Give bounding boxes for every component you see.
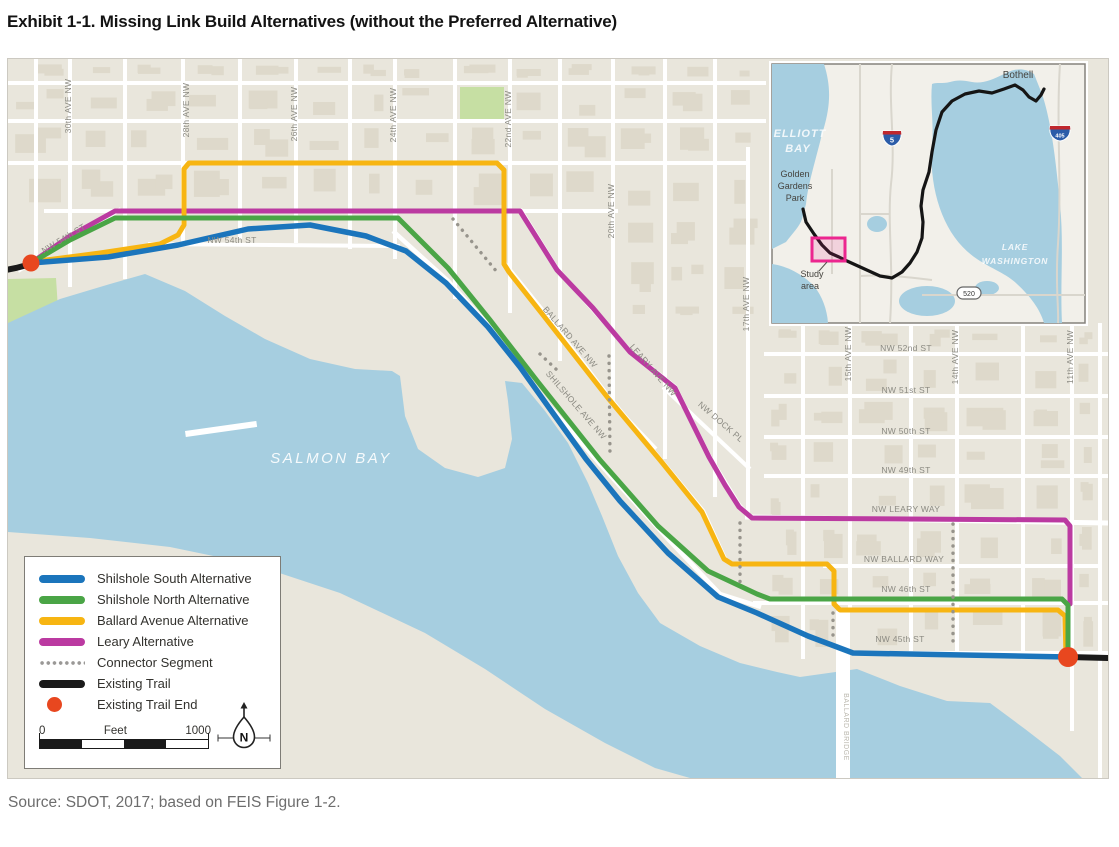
- building: [86, 131, 106, 147]
- building: [972, 334, 997, 340]
- street-label: NW 51st ST: [882, 385, 931, 395]
- street-label: 22nd AVE NW: [503, 90, 513, 147]
- building: [688, 139, 709, 151]
- building: [1040, 335, 1057, 342]
- building: [814, 413, 829, 421]
- street-label: NW 46th ST: [881, 584, 930, 594]
- building: [1082, 527, 1092, 550]
- legend-swatch-line: [39, 575, 85, 583]
- street-label: 14th AVE NW: [950, 330, 960, 385]
- building: [671, 267, 682, 281]
- study-area-box: [812, 238, 845, 261]
- building: [734, 219, 758, 229]
- building: [38, 128, 62, 139]
- building: [37, 64, 61, 73]
- street-label: 20th AVE NW: [606, 184, 616, 239]
- legend-item: Existing Trail: [39, 673, 272, 694]
- building: [369, 174, 380, 194]
- street-label: 28th AVE NW: [181, 83, 191, 138]
- building: [639, 70, 650, 76]
- inset-label: BAY: [785, 143, 811, 155]
- inset-label: Golden: [780, 169, 809, 179]
- building: [976, 363, 999, 381]
- building: [779, 329, 791, 337]
- svg-text:520: 520: [963, 291, 975, 298]
- building: [1051, 538, 1062, 554]
- building: [673, 183, 699, 201]
- legend-item: Shilshole South Alternative: [39, 568, 272, 589]
- street-label: NW 52nd ST: [880, 343, 932, 353]
- building: [930, 486, 945, 506]
- building: [772, 502, 781, 516]
- building: [523, 131, 541, 140]
- building: [29, 179, 61, 203]
- scale-bar: 0 Feet 1000: [39, 725, 211, 749]
- legend-item: Ballard Avenue Alternative: [39, 610, 272, 631]
- building: [983, 410, 1006, 430]
- building: [208, 179, 229, 195]
- existing-trail-end-east[interactable]: [1058, 647, 1078, 667]
- building: [566, 171, 593, 192]
- legend-label: Shilshole North Alternative: [97, 592, 249, 607]
- building: [262, 177, 287, 189]
- building: [579, 105, 595, 116]
- building: [517, 93, 541, 111]
- building: [310, 141, 339, 150]
- street-label: NW LEARY WAY: [872, 504, 940, 514]
- building: [859, 409, 885, 423]
- legend-item: Shilshole North Alternative: [39, 589, 272, 610]
- source-note: Source: SDOT, 2017; based on FEIS Figure…: [8, 794, 1119, 812]
- legend-label: Existing Trail: [97, 676, 171, 691]
- existing-trail-end-west[interactable]: [23, 255, 40, 272]
- building: [967, 452, 985, 460]
- building: [93, 67, 110, 73]
- legend-items: Shilshole South AlternativeShilshole Nor…: [39, 568, 272, 715]
- legend-swatch-dot: [39, 697, 85, 712]
- building: [318, 67, 342, 73]
- building: [416, 180, 433, 195]
- building: [364, 128, 378, 148]
- building: [1081, 482, 1089, 492]
- building: [147, 99, 168, 111]
- street-label: 26th AVE NW: [289, 87, 299, 142]
- building: [156, 175, 173, 190]
- building: [640, 280, 651, 292]
- building: [729, 228, 754, 245]
- street-label: NW 54th ST: [207, 235, 256, 245]
- inset-label: Study: [800, 269, 824, 279]
- building: [734, 180, 745, 204]
- building: [426, 133, 449, 142]
- building: [131, 130, 147, 147]
- building: [197, 138, 228, 150]
- building: [621, 128, 645, 149]
- building: [250, 102, 268, 110]
- north-letter: N: [240, 731, 249, 745]
- building: [771, 410, 779, 427]
- building: [1080, 403, 1090, 414]
- building: [965, 484, 990, 502]
- building: [811, 484, 820, 497]
- building: [1079, 574, 1089, 587]
- building: [784, 373, 796, 383]
- legend-label: Shilshole South Alternative: [97, 571, 252, 586]
- building: [625, 88, 646, 98]
- building: [824, 534, 843, 558]
- building: [314, 169, 336, 192]
- legend-label: Connector Segment: [97, 655, 213, 670]
- building: [819, 330, 830, 344]
- page-title: Exhibit 1-1. Missing Link Build Alternat…: [7, 12, 1119, 32]
- building: [572, 64, 592, 70]
- inset-map: 5 405 520 ELLIOTTBAYLAKEWASHINGTONBothel…: [769, 61, 1088, 326]
- building: [731, 90, 750, 105]
- inset-label: ELLIOTT: [774, 128, 827, 140]
- building: [313, 102, 335, 115]
- street-label: BALLARD BRIDGE: [842, 693, 849, 761]
- building: [1084, 332, 1092, 339]
- legend-swatch-dotted: [39, 661, 85, 665]
- legend-item: Leary Alternative: [39, 631, 272, 652]
- map: 30th AVE NW28th AVE NW26th AVE NW24th AV…: [8, 59, 1108, 778]
- street-label: NW 45th ST: [875, 634, 924, 644]
- inset-label: WASHINGTON: [982, 256, 1048, 266]
- building: [970, 579, 990, 590]
- north-arrow: N: [216, 700, 272, 764]
- building: [883, 360, 896, 374]
- building: [1041, 460, 1065, 468]
- building: [472, 139, 495, 154]
- street-label: SALMON BAY: [270, 450, 391, 467]
- building: [517, 70, 528, 77]
- building: [363, 65, 374, 74]
- building: [138, 65, 151, 73]
- building: [787, 532, 796, 555]
- building: [829, 367, 842, 386]
- building: [687, 67, 708, 77]
- legend-swatch-line: [39, 680, 85, 688]
- building: [47, 89, 64, 98]
- building: [628, 223, 653, 243]
- building: [211, 66, 223, 75]
- building: [633, 305, 645, 314]
- street-label: 15th AVE NW: [843, 327, 853, 382]
- street-label: NW 50th ST: [881, 426, 930, 436]
- building: [1037, 485, 1058, 508]
- building: [770, 443, 778, 452]
- building: [1042, 444, 1058, 458]
- street-label: 24th AVE NW: [388, 88, 398, 143]
- building: [673, 92, 696, 106]
- street-label: 11th AVE NW: [1065, 330, 1075, 384]
- building: [918, 445, 936, 458]
- building: [1035, 371, 1056, 388]
- building: [1043, 614, 1059, 639]
- inset-label: LAKE: [1002, 242, 1028, 252]
- building: [404, 70, 419, 76]
- inset-label: Bothell: [1003, 70, 1034, 81]
- street-label: NW BALLARD WAY: [864, 554, 944, 564]
- building: [981, 538, 998, 559]
- building: [885, 445, 903, 463]
- map-legend: Shilshole South AlternativeShilshole Nor…: [24, 556, 281, 769]
- street-label: 17th AVE NW: [741, 277, 751, 332]
- inset-label: Park: [786, 193, 805, 203]
- street-label: 30th AVE NW: [63, 79, 73, 134]
- street-label: NW 49th ST: [881, 465, 930, 475]
- building: [402, 88, 429, 95]
- svg-text:405: 405: [1055, 134, 1064, 140]
- building: [772, 575, 783, 591]
- park-block: [460, 87, 504, 119]
- building: [469, 65, 495, 73]
- building: [530, 174, 553, 197]
- legend-label: Existing Trail End: [97, 697, 197, 712]
- building: [691, 265, 703, 274]
- building: [628, 191, 650, 206]
- building: [779, 404, 787, 420]
- building: [256, 66, 279, 75]
- legend-swatch-line: [39, 617, 85, 625]
- legend-label: Leary Alternative: [97, 634, 194, 649]
- building: [1084, 617, 1092, 632]
- building: [265, 139, 288, 156]
- building: [740, 71, 750, 77]
- svg-text:5: 5: [890, 136, 894, 145]
- building: [374, 95, 383, 112]
- inset-label: Gardens: [778, 181, 813, 191]
- building: [671, 233, 688, 244]
- building: [474, 187, 503, 205]
- building: [814, 442, 833, 462]
- legend-swatch-line: [39, 638, 85, 646]
- inset-label: area: [801, 281, 819, 291]
- building: [1034, 411, 1058, 426]
- legend-swatch-line: [39, 596, 85, 604]
- building: [735, 133, 750, 143]
- legend-item: Connector Segment: [39, 652, 272, 673]
- building: [676, 307, 700, 314]
- sr-520-shield: 520: [957, 287, 981, 299]
- building: [189, 95, 216, 107]
- building: [568, 128, 589, 147]
- scale-unit-label: Feet: [104, 725, 127, 737]
- building: [925, 612, 938, 630]
- building: [82, 170, 101, 189]
- building: [198, 65, 213, 74]
- building: [91, 98, 117, 109]
- building: [1079, 364, 1089, 382]
- legend-label: Ballard Avenue Alternative: [97, 613, 249, 628]
- scale-bar-graphic: [39, 739, 209, 749]
- building: [1084, 447, 1092, 463]
- building: [1032, 578, 1045, 596]
